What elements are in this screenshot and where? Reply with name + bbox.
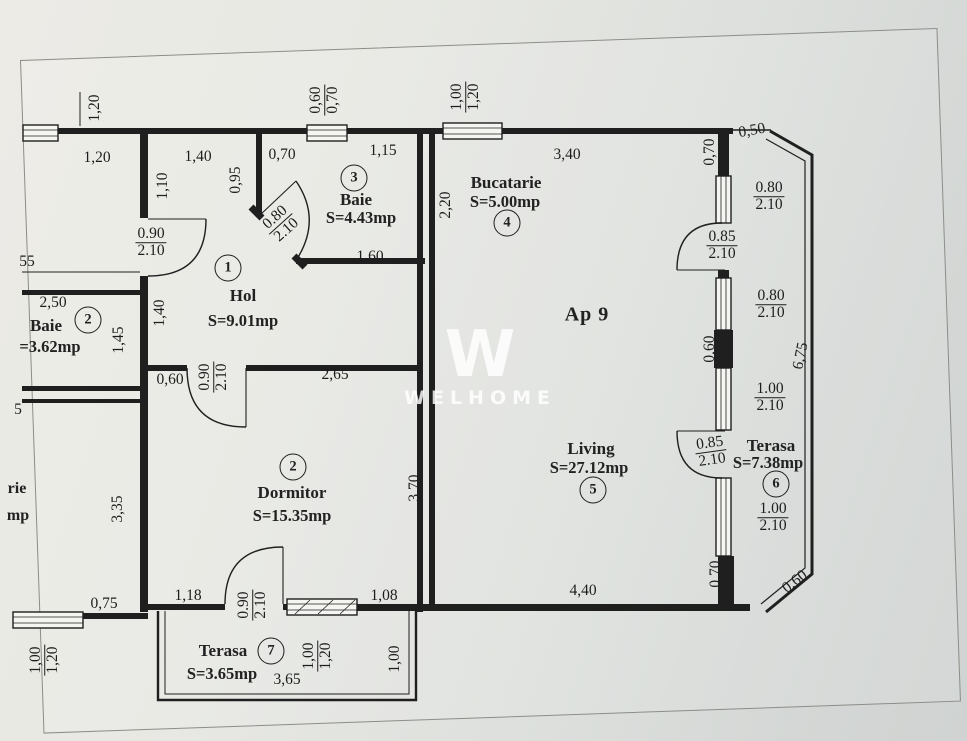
size-spec-label: 0.902.10 bbox=[197, 361, 231, 392]
room-name-label: Hol bbox=[230, 286, 256, 306]
dimension-label: 6,75 bbox=[790, 341, 812, 371]
dimension-label: 1,15 bbox=[369, 143, 396, 159]
room-number-circle: 2 bbox=[280, 454, 307, 481]
room-area-label: S=7.38mp bbox=[733, 453, 803, 473]
room-number-circle: 1 bbox=[215, 255, 242, 282]
room-number-circle: 6 bbox=[763, 471, 790, 498]
room-area-label: S=3.65mp bbox=[187, 664, 257, 684]
partial-room-label: rie bbox=[8, 480, 27, 498]
partial-room-label: mp bbox=[7, 507, 29, 525]
dimension-label: 5 bbox=[14, 402, 22, 418]
labels-layer: Ap 9 1,201,201,401,100,950,701,151,602,2… bbox=[0, 0, 967, 741]
dimension-label: 3,35 bbox=[110, 495, 126, 522]
dimension-label: 1,18 bbox=[174, 588, 201, 604]
room-number-circle: 4 bbox=[494, 210, 521, 237]
size-spec-label: 1,001,20 bbox=[301, 640, 335, 671]
size-spec-label: 0.802.10 bbox=[753, 180, 784, 214]
dimension-label: 1,45 bbox=[111, 326, 127, 353]
dimension-label: 0,50 bbox=[737, 121, 767, 142]
room-area-label: =3.62mp bbox=[19, 337, 80, 357]
dimension-label: 0,95 bbox=[228, 166, 244, 193]
room-area-label: S=27.12mp bbox=[550, 458, 629, 478]
apartment-label: Ap 9 bbox=[565, 304, 610, 327]
room-area-label: S=9.01mp bbox=[208, 311, 278, 331]
dimension-label: 1,60 bbox=[356, 249, 383, 265]
dimension-label: 1,08 bbox=[370, 588, 397, 604]
dimension-label: 0,60 bbox=[156, 372, 183, 388]
room-name-label: Terasa bbox=[199, 641, 248, 661]
floorplan-scan: W WELHOME Ap 9 1,201,201,401,100,950,701… bbox=[0, 0, 967, 741]
room-name-label: Living bbox=[567, 439, 614, 459]
dimension-label: 0,70 bbox=[708, 560, 724, 587]
dimension-label: 1,00 bbox=[387, 645, 403, 672]
size-spec-label: 1,001,20 bbox=[28, 644, 62, 675]
room-number-circle: 7 bbox=[258, 638, 285, 665]
size-spec-label: 0.902.10 bbox=[135, 226, 166, 260]
size-spec-label: 1.002.10 bbox=[757, 501, 788, 535]
dimension-label: 1,20 bbox=[83, 150, 110, 166]
dimension-label: 0,75 bbox=[90, 596, 117, 612]
size-spec-label: 0.802.10 bbox=[755, 288, 786, 322]
dimension-label: 4,40 bbox=[569, 583, 596, 599]
room-name-label: Bucatarie bbox=[471, 173, 542, 193]
room-area-label: S=5.00mp bbox=[470, 192, 540, 212]
dimension-label: 55 bbox=[19, 254, 35, 270]
room-name-label: Dormitor bbox=[258, 483, 327, 503]
room-area-label: S=4.43mp bbox=[326, 208, 396, 228]
room-name-label: Baie bbox=[340, 190, 372, 210]
room-area-label: S=15.35mp bbox=[253, 506, 332, 526]
room-number-circle: 5 bbox=[580, 477, 607, 504]
size-spec-label: 1.002.10 bbox=[754, 381, 785, 415]
dimension-label: 1,10 bbox=[155, 172, 171, 199]
dimension-label: 2,65 bbox=[321, 367, 348, 383]
size-spec-label: 0,600,70 bbox=[308, 84, 342, 115]
dimension-label: 0,70 bbox=[268, 147, 295, 163]
dimension-label: 3,70 bbox=[407, 474, 423, 501]
dimension-label: 0,60 bbox=[779, 567, 810, 597]
dimension-label: 0,70 bbox=[702, 138, 718, 165]
dimension-label: 2,20 bbox=[438, 191, 454, 218]
size-spec-label: 0.852.10 bbox=[706, 229, 737, 263]
room-name-label: Baie bbox=[30, 316, 62, 336]
size-spec-label: 0.902.10 bbox=[236, 589, 270, 620]
dimension-label: 1,40 bbox=[152, 299, 168, 326]
room-number-circle: 2 bbox=[75, 307, 102, 334]
dimension-label: 0,60 bbox=[702, 335, 718, 362]
dimension-label: 1,20 bbox=[87, 94, 103, 121]
dimension-label: 2,50 bbox=[39, 295, 66, 311]
room-number-circle: 3 bbox=[341, 165, 368, 192]
size-spec-label: 0.802.10 bbox=[258, 201, 304, 247]
size-spec-label: 1,001,20 bbox=[449, 81, 483, 112]
dimension-label: 3,40 bbox=[553, 147, 580, 163]
dimension-label: 3,65 bbox=[273, 672, 300, 688]
size-spec-label: 0.852.10 bbox=[693, 433, 728, 471]
dimension-label: 1,40 bbox=[184, 149, 211, 165]
